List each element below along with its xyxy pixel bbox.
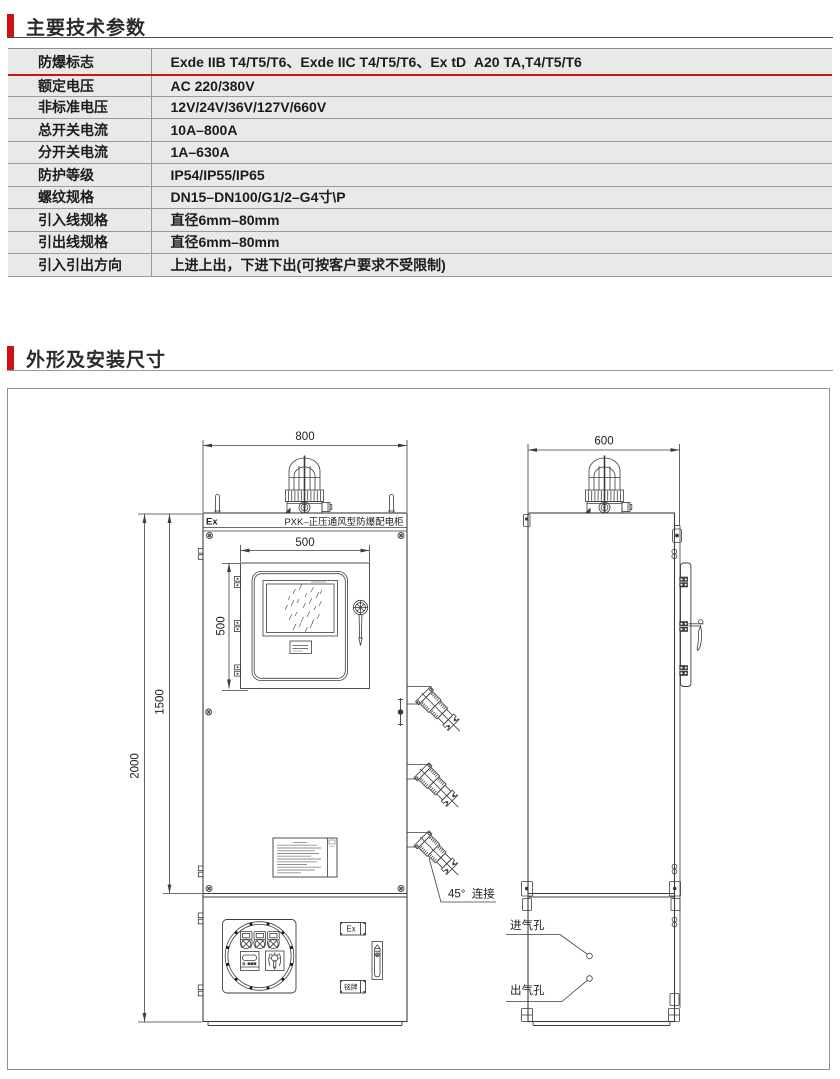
svg-text:Ex: Ex (347, 925, 356, 934)
svg-text:Ex: Ex (206, 517, 218, 528)
svg-text:铭牌: 铭牌 (344, 983, 358, 992)
svg-text:进气孔: 进气孔 (510, 918, 545, 932)
svg-text:1500: 1500 (155, 689, 167, 715)
svg-text:2000: 2000 (130, 753, 142, 779)
svg-text:PXK–正压通风型防爆配电柜: PXK–正压通风型防爆配电柜 (284, 516, 404, 528)
svg-text:500: 500 (216, 616, 228, 635)
svg-text:45° 连接: 45° 连接 (448, 887, 495, 901)
svg-text:600: 600 (594, 436, 613, 448)
svg-text:800: 800 (295, 431, 314, 443)
svg-text:500: 500 (295, 537, 314, 549)
svg-text:出气孔: 出气孔 (510, 983, 545, 997)
